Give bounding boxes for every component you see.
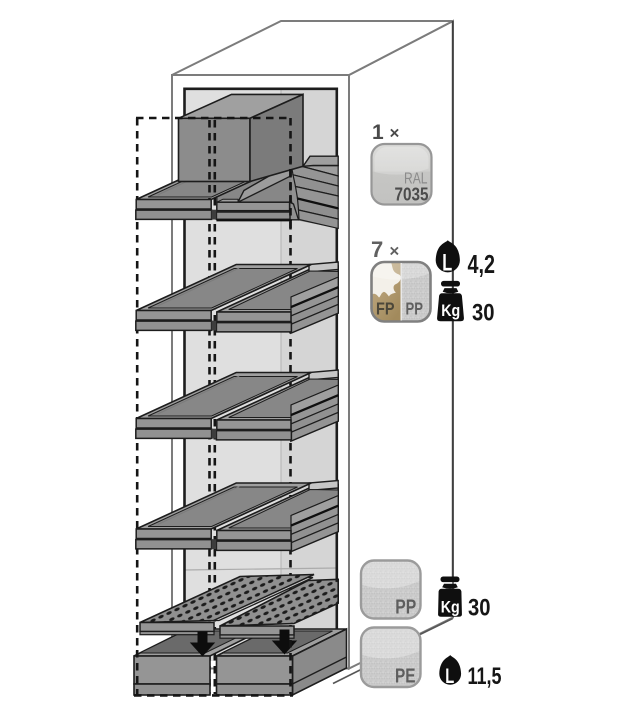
svg-text:4,2: 4,2 <box>468 249 496 279</box>
svg-text:11,5: 11,5 <box>468 663 502 690</box>
svg-text:1 ×: 1 × <box>372 121 400 144</box>
svg-text:Kg: Kg <box>441 301 460 320</box>
svg-text:PP: PP <box>406 299 424 319</box>
svg-text:30: 30 <box>468 595 491 622</box>
svg-text:7 ×: 7 × <box>371 237 399 262</box>
svg-text:L: L <box>442 250 452 277</box>
svg-text:FP: FP <box>376 299 395 319</box>
svg-text:PE: PE <box>395 665 416 688</box>
svg-text:30: 30 <box>472 300 495 327</box>
svg-text:PP: PP <box>395 596 416 619</box>
svg-text:L: L <box>445 665 454 688</box>
svg-text:7035: 7035 <box>395 185 429 205</box>
svg-text:Kg: Kg <box>441 598 460 617</box>
